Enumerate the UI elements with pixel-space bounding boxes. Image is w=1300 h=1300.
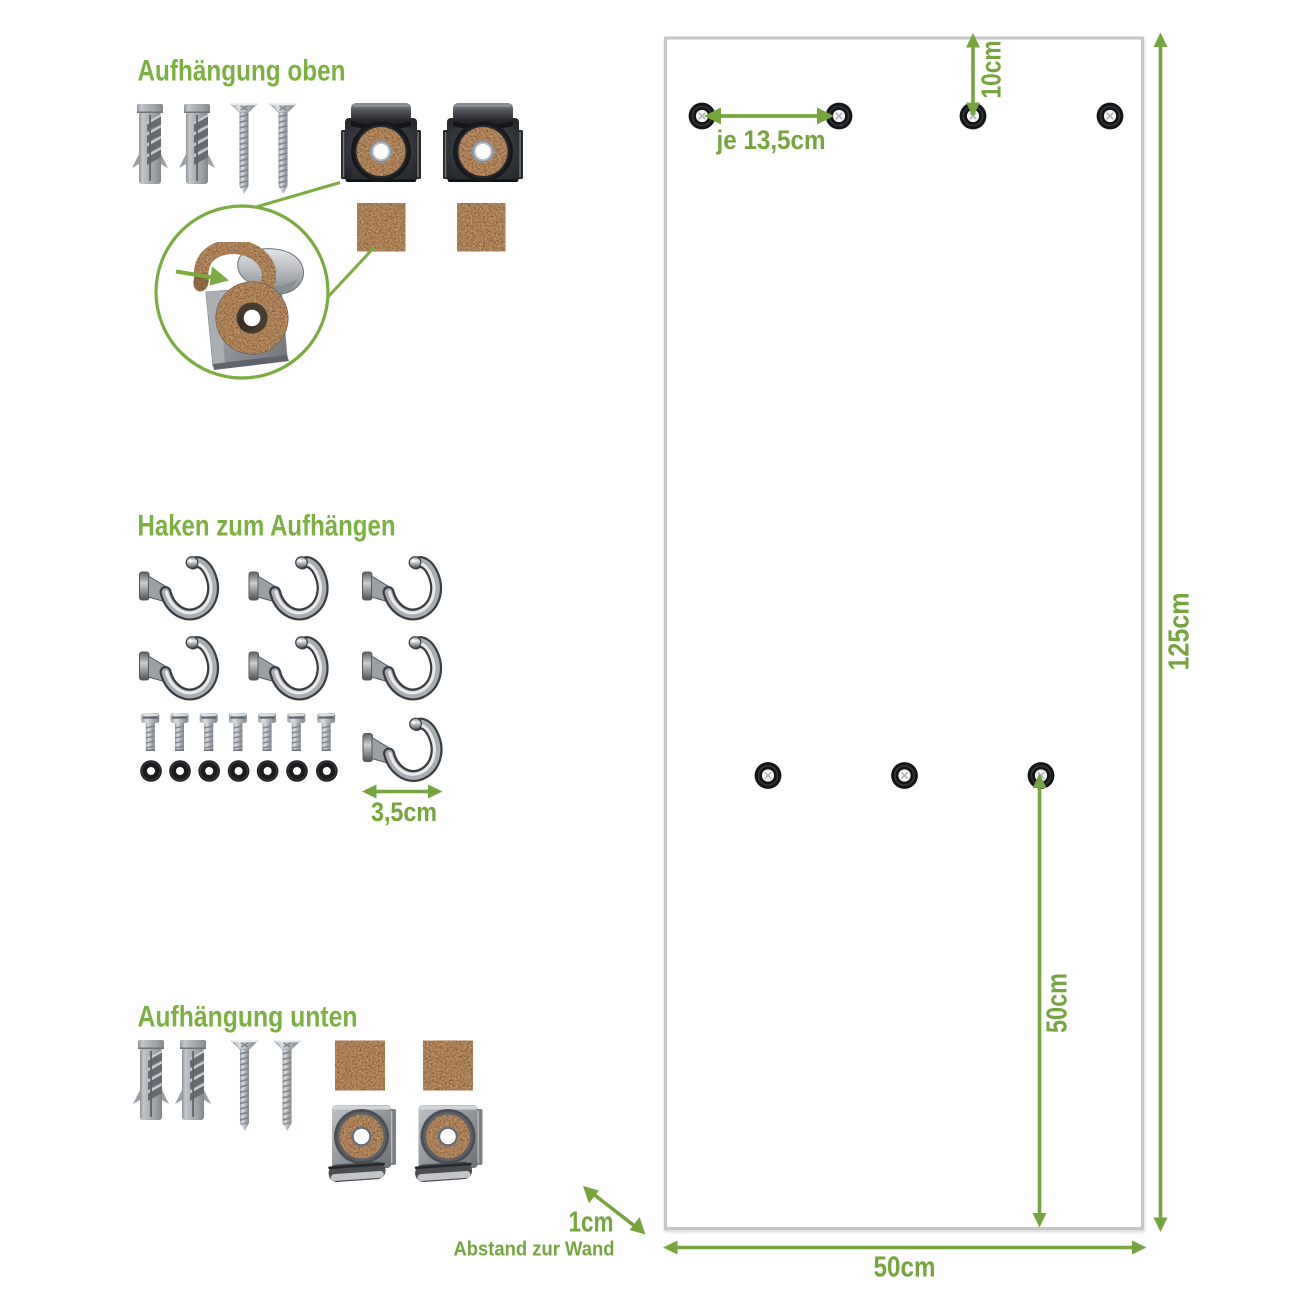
svg-text:50cm: 50cm [1042, 973, 1074, 1033]
svg-text:Haken zum Aufhängen: Haken zum Aufhängen [138, 510, 396, 543]
svg-text:Abstand zur Wand: Abstand zur Wand [454, 1238, 615, 1261]
svg-text:je 13,5cm: je 13,5cm [716, 125, 826, 155]
svg-text:50cm: 50cm [874, 1252, 936, 1284]
svg-text:1cm: 1cm [569, 1207, 614, 1239]
svg-text:Aufhängung unten: Aufhängung unten [138, 1001, 358, 1034]
svg-text:125cm: 125cm [1164, 593, 1196, 671]
svg-text:10cm: 10cm [976, 41, 1007, 99]
svg-text:3,5cm: 3,5cm [371, 797, 437, 827]
svg-text:Aufhängung oben: Aufhängung oben [138, 55, 346, 88]
